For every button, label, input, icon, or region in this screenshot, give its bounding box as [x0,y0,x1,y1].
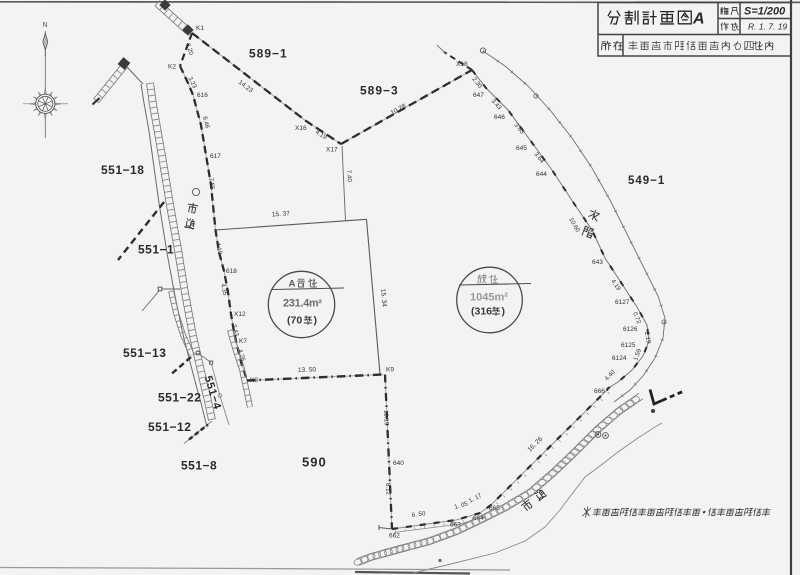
svg-text:13. 50: 13. 50 [298,366,317,374]
svg-text:645: 645 [516,145,527,152]
svg-text:618: 618 [226,268,237,275]
svg-text:231.4m²: 231.4m² [283,298,322,310]
svg-text:1045m²: 1045m² [470,292,508,304]
svg-text:666: 666 [594,388,605,395]
svg-text:589−1: 589−1 [249,47,288,61]
svg-text:K2: K2 [168,64,176,71]
svg-text:616: 616 [197,92,208,99]
svg-text:K9: K9 [386,367,394,374]
svg-text:R. 1. 7. 19: R. 1. 7. 19 [748,22,787,32]
svg-text:646: 646 [494,114,505,121]
svg-text:X12: X12 [234,311,246,318]
svg-text:643: 643 [592,259,603,266]
svg-text:551−12: 551−12 [148,420,191,434]
svg-text:A: A [692,11,705,28]
svg-text:640: 640 [393,460,404,467]
svg-text:7.40: 7.40 [345,170,353,183]
svg-text:K7: K7 [239,338,247,345]
svg-text:10.19: 10.19 [382,410,390,426]
svg-text:644: 644 [536,171,547,178]
svg-text:551−8: 551−8 [181,459,217,473]
svg-text:X17: X17 [326,147,338,154]
svg-text:647: 647 [473,92,484,99]
svg-text:551−18: 551−18 [101,163,144,177]
svg-text:15. 37: 15. 37 [272,210,291,218]
svg-text:6127: 6127 [615,299,630,306]
svg-text:S=1/200: S=1/200 [744,6,786,18]
svg-text:551−22: 551−22 [158,391,201,405]
svg-text:662: 662 [389,533,400,540]
svg-text:6125: 6125 [621,342,636,349]
svg-text:6124: 6124 [612,355,627,362]
svg-text:551−13: 551−13 [123,346,166,360]
svg-text:(316: (316 [471,306,492,318]
svg-text:(70: (70 [287,315,302,327]
svg-text:): ) [502,306,506,318]
svg-text:): ) [314,315,318,327]
svg-text:551−1: 551−1 [138,243,174,257]
svg-text:K1: K1 [196,25,204,32]
svg-text:N: N [43,22,48,29]
svg-text:589−3: 589−3 [360,84,399,98]
svg-text:8.12: 8.12 [384,483,392,496]
svg-text:590: 590 [302,455,327,470]
svg-text:6126: 6126 [623,326,638,333]
svg-text:549−1: 549−1 [628,175,665,187]
svg-text:X16: X16 [295,125,307,132]
svg-text:A: A [289,279,296,290]
svg-text:617: 617 [210,153,221,160]
